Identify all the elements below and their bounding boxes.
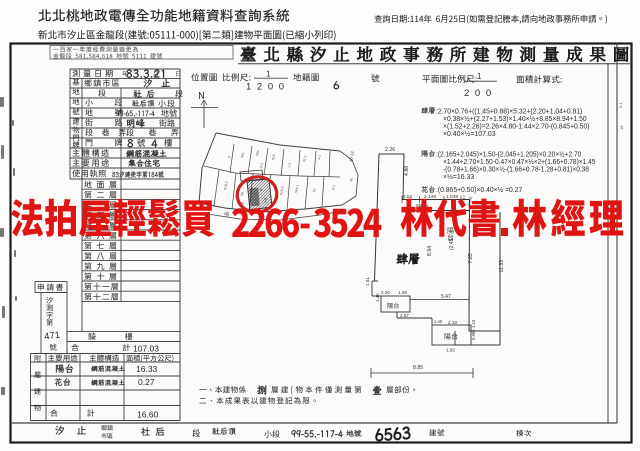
svg-text:2.26: 2.26: [385, 147, 395, 153]
svg-text:×1.44+2.70×1.50-0.47×0.47×½×2+: ×1.44+2.70×1.50-0.47×0.47×½×2+(1.66+0.78…: [443, 158, 596, 166]
svg-text:2 0 0: 2 0 0: [464, 88, 493, 99]
svg-text:4.88: 4.88: [404, 166, 410, 176]
svg-text:471: 471: [44, 330, 61, 343]
svg-text:1.048: 1.048: [446, 194, 458, 200]
svg-text:×½=16.33: ×½=16.33: [443, 173, 474, 181]
svg-text:1: 1: [477, 72, 482, 81]
svg-text:2.20: 2.20: [381, 290, 390, 295]
svg-text:×0.40×½=107.03: ×0.40×½=107.03: [443, 130, 496, 138]
svg-text:107.03: 107.03: [133, 344, 159, 354]
svg-text:7.85: 7.85: [468, 253, 474, 263]
svg-text:1.92: 1.92: [446, 348, 455, 353]
svg-text:1.08: 1.08: [398, 290, 407, 295]
svg-text:1.46: 1.46: [375, 293, 380, 302]
svg-text::(2.165+2.045)×1.50-(2.045+1.2: :(2.165+2.045)×1.50-(2.045+1.205)×0.20×½…: [436, 150, 581, 158]
svg-text:8.85: 8.85: [413, 365, 423, 371]
svg-text:1: 1: [266, 70, 271, 79]
svg-text:16.33: 16.33: [136, 364, 158, 374]
svg-text:5.47: 5.47: [441, 294, 451, 300]
svg-text::2.70×0.76+((1.45+0.88)×5.32+(: :2.70×0.76+((1.45+0.88)×5.32+(2.20+1.04+…: [436, 108, 582, 115]
svg-text:8.94: 8.94: [427, 246, 433, 256]
svg-text:2.67: 2.67: [400, 313, 409, 318]
svg-text:18: 18: [619, 125, 624, 130]
svg-text:0.27: 0.27: [138, 377, 155, 387]
svg-text:1.10: 1.10: [471, 319, 476, 328]
svg-text:1.51: 1.51: [365, 277, 370, 286]
svg-text:(2.45: (2.45: [449, 238, 455, 250]
svg-text:0.985: 0.985: [471, 329, 476, 340]
svg-text:1.40: 1.40: [434, 319, 443, 324]
svg-text:1 2 0 0: 1 2 0 0: [246, 82, 286, 93]
svg-text:2.19: 2.19: [448, 320, 457, 325]
svg-text:5-1: 5-1: [618, 101, 623, 108]
svg-text:16.60: 16.60: [137, 410, 159, 420]
svg-text:11.93: 11.93: [499, 260, 505, 273]
svg-text::(0.865+0.50)×0.40×½ =0.27: :(0.865+0.50)×0.40×½ =0.27: [436, 186, 522, 194]
svg-text:×0.38×½+(2.27+1.53)×1.40×½+8.8: ×0.38×½+(2.27+1.53)×1.40×½+8.85×8.94+1.5…: [443, 115, 587, 123]
